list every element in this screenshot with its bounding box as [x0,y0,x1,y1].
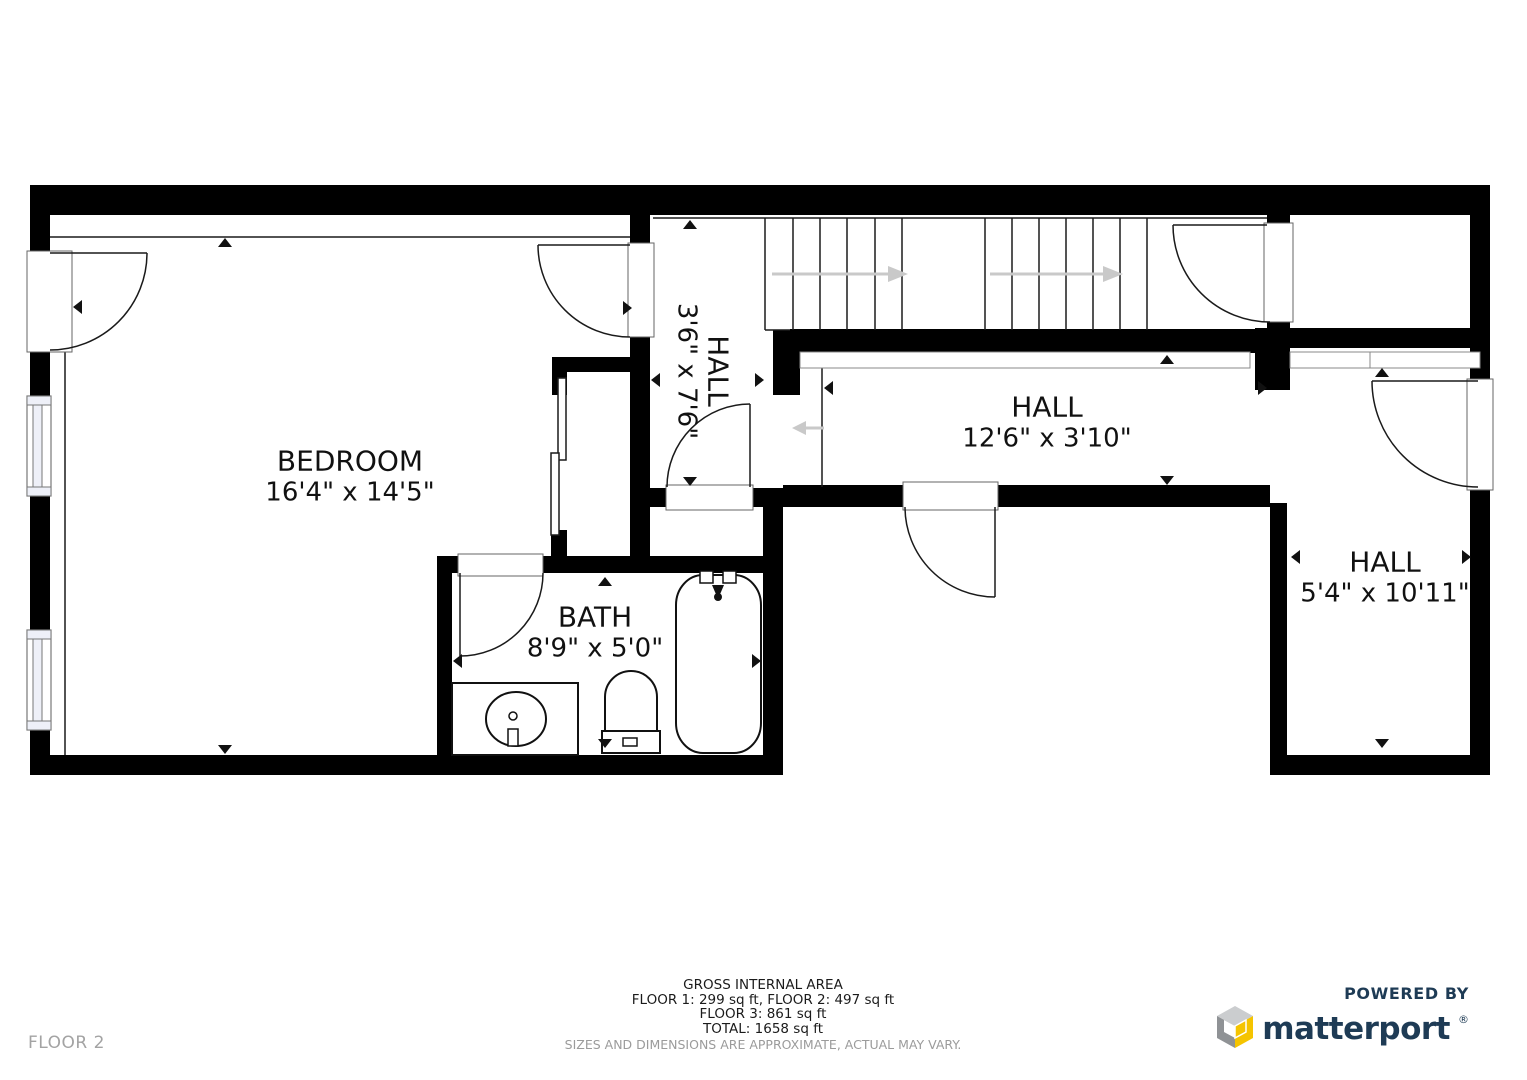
door-topright-room [1173,223,1293,322]
dim-arrow-up [683,220,697,229]
stair-railing-right [1290,352,1480,368]
wall-hall-middle-bottom-a [783,485,905,507]
floorplan-drawing [0,0,1527,1080]
sliding-closet-doors [551,378,566,535]
wall-bath-left [437,558,452,758]
door-bedroom-entry [27,251,147,352]
stair-railings [800,352,1480,368]
registered-trademark-symbol: ® [1458,1013,1469,1026]
toilet [602,671,660,753]
bathtub [676,571,761,753]
matterport-wordmark: matterport [1262,1014,1450,1045]
door-bedroom-hall [538,243,654,337]
dim-arrow-right [755,373,764,387]
dimensions-disclaimer: SIZES AND DIMENSIONS ARE APPROXIMATE, AC… [565,1038,962,1053]
wall-bath-right [763,488,783,758]
room-label-hall-middle: HALL 12'6" x 3'10" [962,392,1131,455]
sink-vanity [452,683,578,755]
wall-bottom-left [30,755,783,775]
floor-indicator: FLOOR 2 [28,1033,105,1053]
gross-internal-area-block: GROSS INTERNAL AREA FLOOR 1: 299 sq ft, … [565,978,962,1053]
window-upper [27,396,51,496]
wall-hall-middle-bottom-b [996,485,1270,507]
stair-arrow-head [792,421,806,435]
wall-top [30,185,1490,215]
wall-bedroom-hall-upper [630,215,650,245]
room-dimensions: 12'6" x 3'10" [962,424,1131,454]
area-line-3: TOTAL: 1658 sq ft [565,1022,962,1037]
room-name: HALL [701,303,733,439]
wall-bath-top-b [541,556,783,573]
dim-arrow-up [218,238,232,247]
room-name: HALL [1300,547,1469,579]
wall-hall-right-left [1270,503,1287,755]
room-dimensions: 8'9" x 5'0" [527,634,663,664]
room-label-bedroom: BEDROOM 16'4" x 14'5" [265,446,434,509]
wall-hall-upper-bottom-b [751,488,783,507]
room-dimensions: 5'4" x 10'11" [1300,579,1469,609]
wall-bottom-right [1270,755,1490,775]
room-label-hall-upper: HALL 3'6" x 7'6" [671,303,734,439]
dim-arrow-up [1375,368,1389,377]
stair-arrow-head [888,266,908,282]
wall-bedroom-hall-main [630,335,650,573]
room-name: BEDROOM [265,446,434,478]
dim-arrow-down [218,745,232,754]
tub-faucet-drop [714,593,722,601]
area-line-2: FLOOR 3: 861 sq ft [565,1007,962,1022]
sliding-panel [558,378,566,460]
door-hall-right-exterior [1372,379,1493,490]
door-hall-middle [903,482,998,597]
area-line-1: FLOOR 1: 299 sq ft, FLOOR 2: 497 sq ft [565,993,962,1008]
matterport-cube-icon [1215,1005,1255,1053]
room-name: BATH [527,602,663,634]
room-dimensions: 16'4" x 14'5" [265,478,434,508]
wall-right [1470,215,1490,775]
stair-railing-left [800,352,1250,368]
wall-hall-upper-bottom-a [630,488,668,507]
wall-topright-room-bottom [1267,328,1470,348]
powered-by-text: POWERED BY [1215,984,1469,1003]
window-lower [27,630,51,730]
dim-arrow-left [651,373,660,387]
wall-stair-band [790,329,1255,353]
room-label-hall-right: HALL 5'4" x 10'11" [1300,547,1469,610]
toilet-flush-button [623,738,637,746]
dim-arrow-left [1291,550,1300,564]
sink-drain [509,712,517,720]
dim-arrow-left [453,654,462,668]
sliding-panel [551,453,559,535]
dim-arrow-left [73,300,82,314]
dim-arrow-down [1160,476,1174,485]
sink-faucet [508,729,518,746]
dim-arrow-down [1375,739,1389,748]
matterport-branding: POWERED BY matterport® [1215,984,1469,1053]
floorplan-page: BEDROOM 16'4" x 14'5" HALL 3'6" x 7'6" H… [0,0,1527,1080]
room-dimensions: 3'6" x 7'6" [671,303,701,439]
room-name: HALL [962,392,1131,424]
room-label-bath: BATH 8'9" x 5'0" [527,602,663,665]
dim-arrow-left [824,381,833,395]
dim-arrow-up [598,577,612,586]
gross-area-title: GROSS INTERNAL AREA [565,978,962,993]
